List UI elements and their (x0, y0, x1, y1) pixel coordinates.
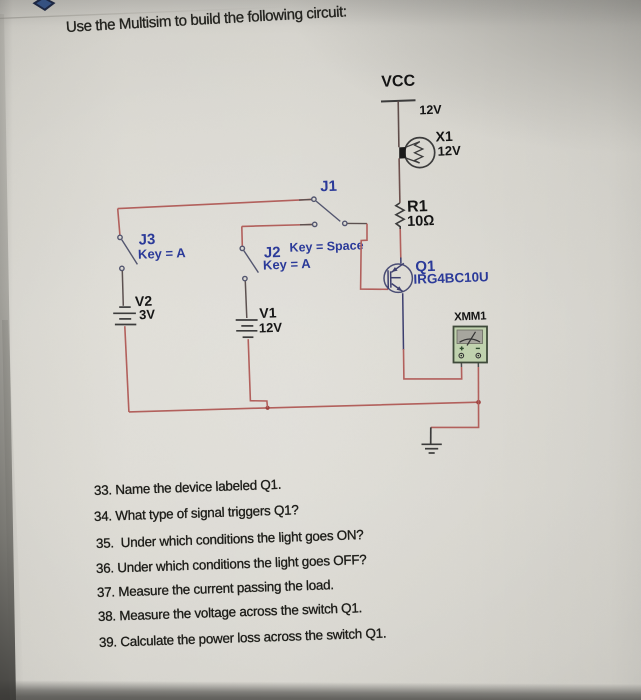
svg-text:Key = A: Key = A (138, 245, 187, 262)
svg-text:V2: V2 (135, 293, 153, 310)
svg-text:10Ω: 10Ω (407, 213, 435, 230)
svg-text:V1: V1 (259, 304, 277, 321)
svg-text:Q1: Q1 (415, 258, 436, 276)
svg-text:12V: 12V (437, 143, 461, 159)
svg-text:12V: 12V (259, 320, 283, 336)
svg-text:R1: R1 (407, 198, 428, 216)
svg-text:IRG4BC10U: IRG4BC10U (413, 269, 489, 287)
svg-text:X1: X1 (435, 128, 453, 145)
svg-text:J2: J2 (264, 244, 281, 262)
svg-text:Key = Space: Key = Space (289, 238, 363, 255)
svg-text:VCC: VCC (381, 73, 416, 91)
svg-text:J1: J1 (320, 178, 337, 196)
svg-text:12V: 12V (419, 103, 442, 118)
svg-text:3V: 3V (139, 307, 156, 323)
svg-text:XMM1: XMM1 (454, 310, 487, 323)
svg-text:J3: J3 (138, 231, 155, 249)
svg-text:Key = A: Key = A (263, 256, 312, 273)
